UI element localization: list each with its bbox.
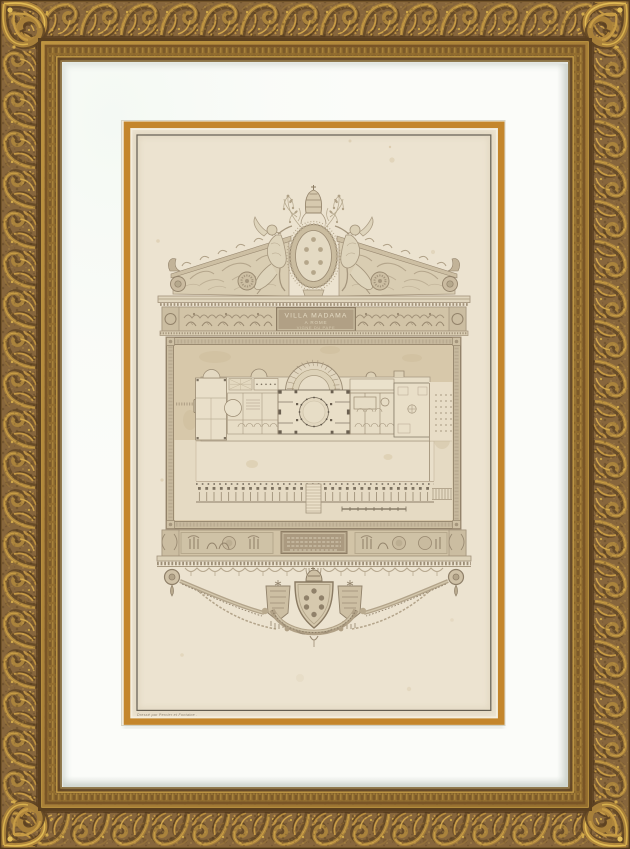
svg-text:VIGNE DU PAPE: VIGNE DU PAPE	[297, 325, 336, 330]
svg-text:VILLA MADAMA: VILLA MADAMA	[284, 313, 347, 320]
svg-text:Dressé par Percier et Fontaine: Dressé par Percier et Fontaine .	[137, 713, 198, 717]
